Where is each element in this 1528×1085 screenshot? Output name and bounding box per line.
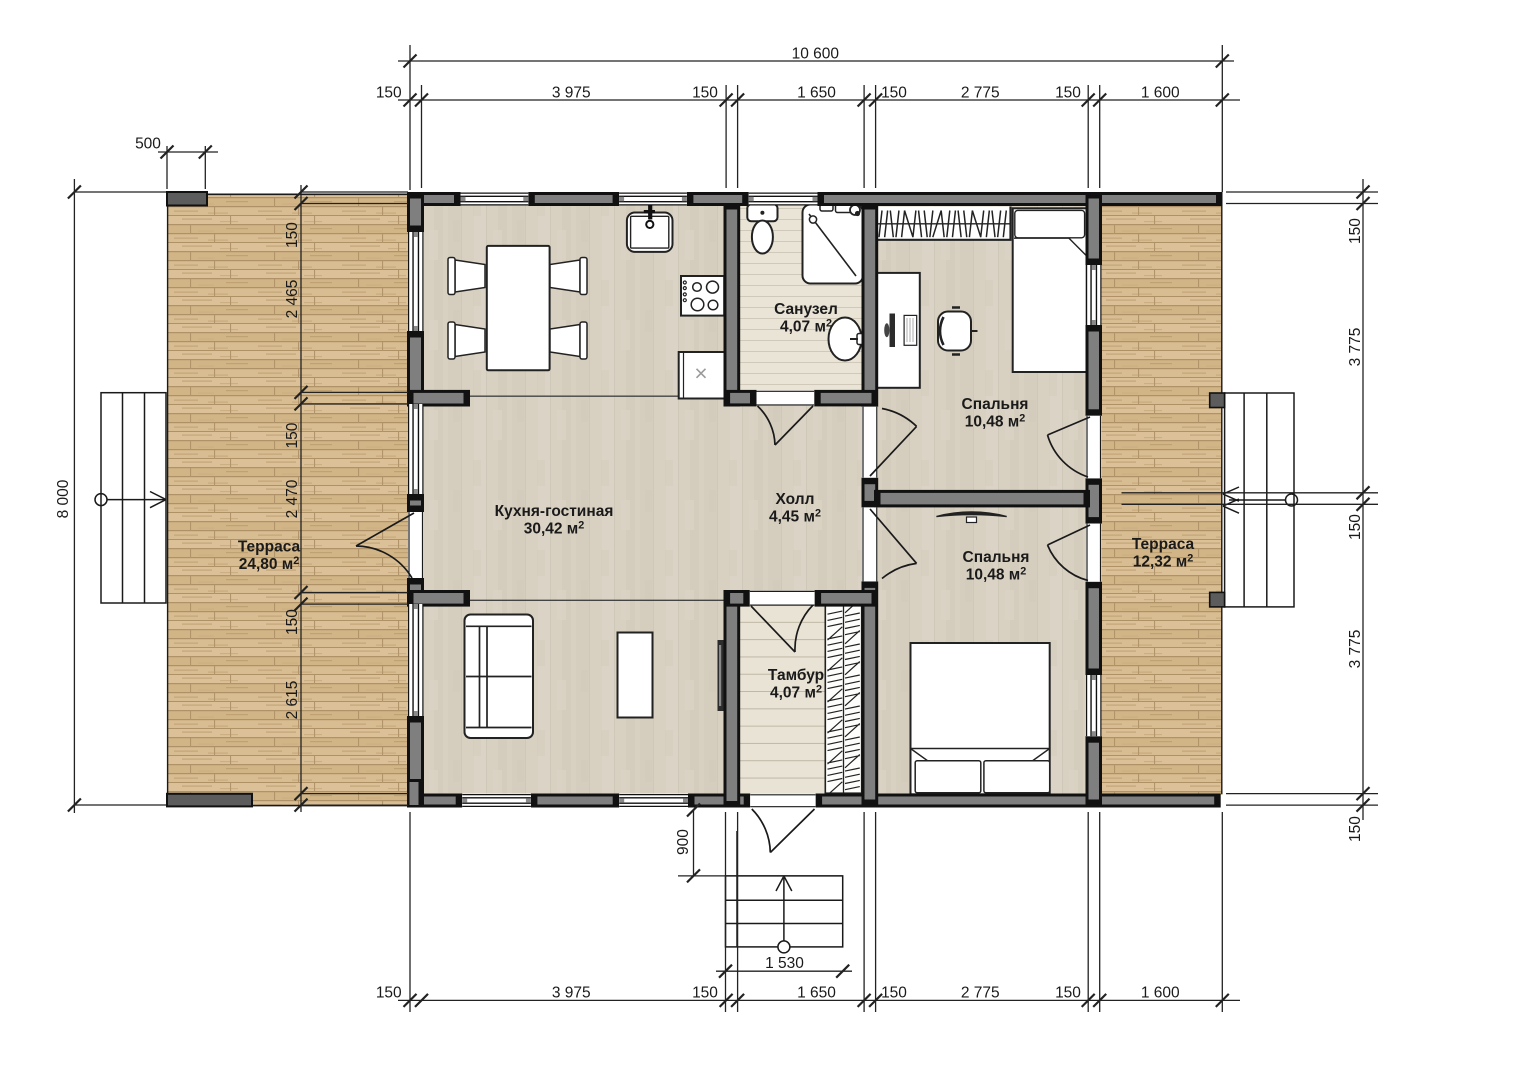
svg-text:3 775: 3 775 [1347, 328, 1364, 367]
svg-text:1 530: 1 530 [765, 955, 804, 972]
svg-text:900: 900 [675, 829, 692, 855]
svg-text:2 470: 2 470 [284, 479, 301, 518]
svg-text:Кухня-гостиная: Кухня-гостиная [495, 503, 614, 520]
svg-text:Спальня: Спальня [963, 549, 1030, 566]
svg-text:Терраса: Терраса [1132, 536, 1195, 553]
svg-text:Санузел: Санузел [774, 301, 838, 318]
svg-text:10,48 м2: 10,48 м2 [966, 565, 1027, 583]
svg-text:2 465: 2 465 [284, 280, 301, 319]
svg-text:150: 150 [692, 985, 718, 1002]
svg-text:3 975: 3 975 [552, 85, 591, 102]
svg-text:3 975: 3 975 [552, 985, 591, 1002]
svg-text:150: 150 [376, 985, 402, 1002]
svg-text:150: 150 [284, 422, 301, 448]
svg-text:2 615: 2 615 [284, 681, 301, 720]
svg-text:24,80 м2: 24,80 м2 [239, 555, 300, 573]
svg-text:30,42 м2: 30,42 м2 [524, 520, 585, 538]
svg-text:2 775: 2 775 [961, 85, 1000, 102]
svg-text:Терраса: Терраса [238, 539, 301, 556]
svg-text:1 600: 1 600 [1141, 85, 1180, 102]
svg-text:1 650: 1 650 [797, 85, 836, 102]
svg-text:3 775: 3 775 [1347, 630, 1364, 669]
svg-text:150: 150 [881, 85, 907, 102]
svg-text:150: 150 [1055, 985, 1081, 1002]
svg-text:4,45 м2: 4,45 м2 [769, 507, 821, 525]
svg-text:150: 150 [1055, 85, 1081, 102]
svg-text:150: 150 [881, 985, 907, 1002]
svg-text:10,48 м2: 10,48 м2 [965, 412, 1026, 430]
svg-text:1 600: 1 600 [1141, 985, 1180, 1002]
svg-text:150: 150 [1347, 514, 1364, 540]
svg-text:Тамбур: Тамбур [768, 667, 824, 684]
svg-text:150: 150 [284, 609, 301, 635]
svg-text:150: 150 [284, 222, 301, 248]
svg-text:10 600: 10 600 [792, 46, 840, 63]
svg-text:Спальня: Спальня [962, 396, 1029, 413]
svg-text:150: 150 [1347, 218, 1364, 244]
svg-text:150: 150 [1347, 816, 1364, 842]
svg-text:500: 500 [135, 136, 161, 153]
svg-text:4,07 м2: 4,07 м2 [780, 318, 832, 336]
svg-text:150: 150 [376, 85, 402, 102]
svg-text:150: 150 [692, 85, 718, 102]
svg-text:8 000: 8 000 [55, 479, 72, 518]
svg-text:2 775: 2 775 [961, 985, 1000, 1002]
svg-text:1 650: 1 650 [797, 985, 836, 1002]
svg-text:4,07 м2: 4,07 м2 [770, 683, 822, 701]
svg-text:Холл: Холл [776, 491, 815, 508]
svg-text:12,32 м2: 12,32 м2 [1133, 552, 1194, 570]
